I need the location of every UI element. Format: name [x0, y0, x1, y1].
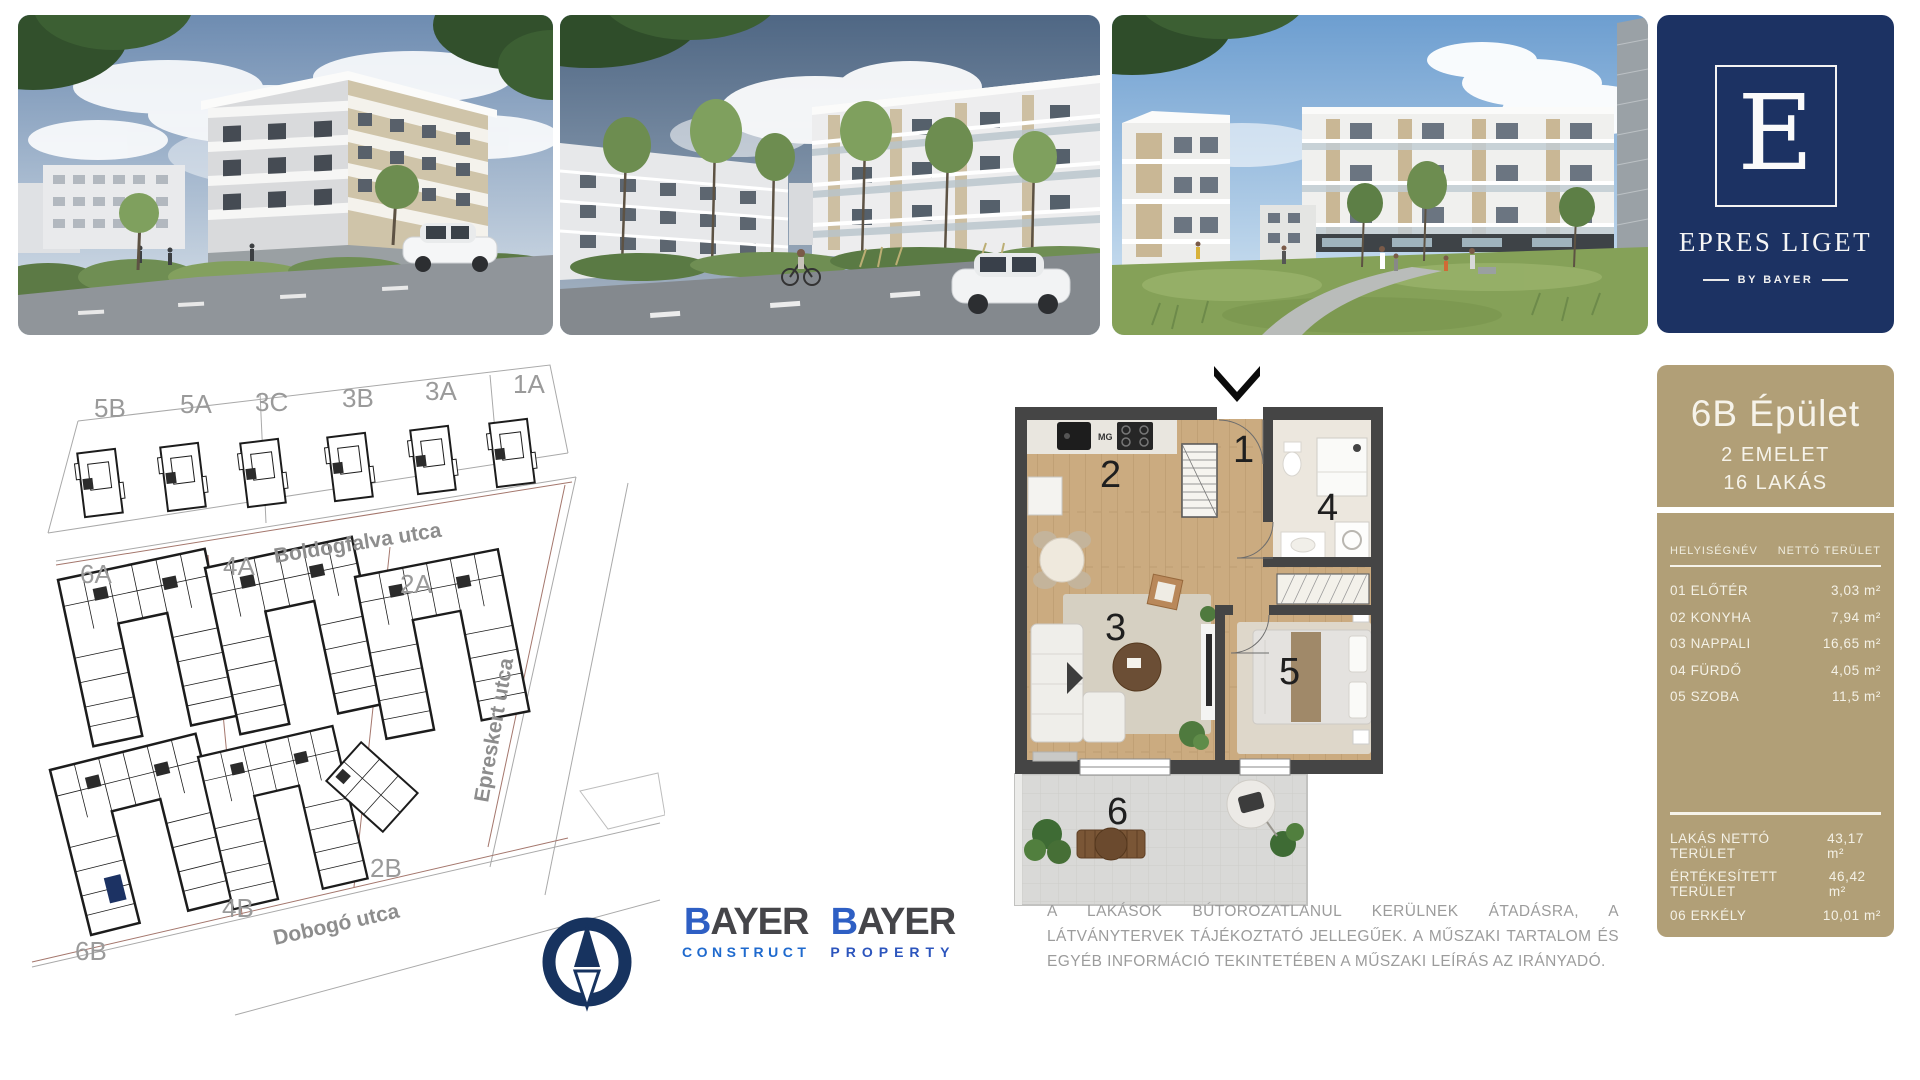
entrance-arrow-icon [1214, 366, 1260, 402]
label-4b: 4B [222, 893, 254, 923]
nightstand [1353, 730, 1369, 744]
table-divider [1670, 565, 1881, 567]
flat-datasheet-page: E EPRES LIGET BY BAYER [0, 0, 1920, 1080]
fridge [1028, 477, 1062, 515]
logo-subtitle-construct: CONSTRUCT [682, 944, 810, 960]
building-flats: 16 LAKÁS [1657, 472, 1894, 495]
brand-byline: BY BAYER [1703, 274, 1849, 286]
room-area: 16,65 m² [1823, 636, 1881, 651]
right-foreground-building [1617, 17, 1648, 287]
toilet [1283, 442, 1301, 476]
developer-logos: BAYER CONSTRUCT BAYER PROPERTY [682, 903, 955, 960]
hall-closet [1182, 444, 1217, 517]
column-header-room: HELYISÉGNÉV [1670, 545, 1758, 557]
room-name: 03 NAPPALI [1670, 636, 1751, 651]
table-row: 02 KONYHA 7,94 m² [1670, 610, 1881, 625]
label-3c: 3C [255, 387, 288, 417]
unit-info-header: 6B Épület 2 EMELET 16 LAKÁS [1657, 365, 1894, 507]
site-plan-map: 5B 5A 3C 3B 3A 1A 6A 4A 2A 2B 4B 6B Bold… [20, 355, 665, 1030]
render-photo-corner-building [18, 15, 553, 335]
label-3a: 3A [425, 376, 457, 406]
table-row: 05 SZOBA 11,5 m² [1670, 689, 1881, 704]
byline-text: BY BAYER [1738, 274, 1814, 286]
room-table: HELYISÉGNÉV NETTÓ TERÜLET 01 ELŐTÉR 3,03… [1657, 513, 1894, 937]
room-3: 3 [1105, 607, 1126, 649]
label-1a: 1A [513, 369, 545, 399]
label-4a: 4A [223, 551, 255, 581]
bed [1253, 630, 1371, 724]
room-5: 5 [1279, 651, 1300, 693]
tv [1206, 634, 1212, 706]
render-photo-3-art [1112, 15, 1648, 335]
room-area: 3,03 m² [1831, 583, 1881, 598]
label-5b: 5B [94, 393, 126, 423]
label-6a: 6A [80, 559, 112, 589]
room-name: 05 SZOBA [1670, 689, 1739, 704]
room-6: 6 [1107, 791, 1128, 833]
wardrobe [1277, 574, 1369, 604]
room-area: 7,94 m² [1831, 610, 1881, 625]
render-photo-2-art [560, 15, 1100, 335]
logo-subtitle-property: PROPERTY [830, 944, 955, 960]
logo-letter-b: B [684, 901, 710, 943]
summary-name: 06 ERKÉLY [1670, 908, 1746, 923]
bayer-construct-logo: BAYER CONSTRUCT [682, 903, 810, 960]
summary-row: ÉRTÉKESÍTETT TERÜLET 46,42 m² [1670, 869, 1881, 899]
distant-buildings [18, 165, 185, 253]
room-name: 02 KONYHA [1670, 610, 1751, 625]
left-building [1122, 111, 1230, 269]
unit-info-panel: 6B Épület 2 EMELET 16 LAKÁS HELYISÉGNÉV … [1657, 365, 1894, 937]
label-5a: 5A [180, 389, 212, 419]
byline-dash-left [1703, 279, 1729, 281]
logo-letters-ayer: AYER [857, 901, 955, 943]
label-6b: 6B [75, 936, 107, 966]
logo-letter-b: B [831, 901, 857, 943]
summary-divider [1670, 812, 1881, 815]
summary-area: 43,17 m² [1827, 831, 1881, 861]
room-2: 2 [1100, 454, 1121, 496]
label-2b: 2B [370, 853, 402, 883]
room-area: 11,5 m² [1832, 689, 1881, 704]
appliance-label: MG [1098, 432, 1113, 442]
column-header-area: NETTÓ TERÜLET [1778, 545, 1881, 557]
brand-name: EPRES LIGET [1679, 227, 1872, 258]
room-4: 4 [1317, 487, 1338, 529]
logo-letters-ayer: AYER [710, 901, 808, 943]
label-3b: 3B [342, 383, 374, 413]
washing-machine [1335, 522, 1369, 558]
bayer-property-logo: BAYER PROPERTY [830, 903, 955, 960]
render-photo-street-view [560, 15, 1100, 335]
brand-card: E EPRES LIGET BY BAYER [1657, 15, 1894, 333]
brand-monogram-frame: E [1715, 65, 1837, 207]
byline-dash-right [1822, 279, 1848, 281]
summary-area: 10,01 m² [1823, 908, 1881, 923]
render-photo-courtyard [1112, 15, 1648, 335]
street-dobogo: Dobogó utca [271, 900, 402, 950]
table-row: 01 ELŐTÉR 3,03 m² [1670, 583, 1881, 598]
summary-area: 46,42 m² [1829, 869, 1881, 899]
kitchen-sink [1057, 422, 1091, 450]
room-name: 04 FÜRDŐ [1670, 663, 1742, 678]
dining-set [1033, 531, 1091, 589]
radiator [1033, 752, 1077, 761]
main-building [1302, 107, 1614, 252]
building-title: 6B Épület [1657, 365, 1894, 435]
floor-plan: MG [1005, 362, 1390, 907]
disclaimer-text: A LAKÁSOK BÚTOROZATLANUL KERÜLNEK ÁTADÁS… [1047, 899, 1619, 974]
compass-north-icon [549, 923, 625, 1007]
room-area: 4,05 m² [1831, 663, 1881, 678]
room-1: 1 [1233, 429, 1254, 471]
label-2a: 2A [400, 569, 432, 599]
render-photo-1-art [18, 15, 553, 335]
summary-name: LAKÁS NETTÓ TERÜLET [1670, 831, 1827, 861]
balcony-side-wall [1015, 774, 1022, 905]
building-floors: 2 EMELET [1657, 444, 1894, 467]
table-row: 04 FÜRDŐ 4,05 m² [1670, 663, 1881, 678]
cooktop [1117, 422, 1153, 450]
table-row: 03 NAPPALI 16,65 m² [1670, 636, 1881, 651]
building-footprints-blocks[interactable] [50, 537, 529, 935]
summary-row: LAKÁS NETTÓ TERÜLET 43,17 m² [1670, 831, 1881, 861]
room-name: 01 ELŐTÉR [1670, 583, 1748, 598]
summary-name: ÉRTÉKESÍTETT TERÜLET [1670, 869, 1829, 899]
brand-monogram: E [1738, 81, 1814, 185]
summary-row: 06 ERKÉLY 10,01 m² [1670, 908, 1881, 923]
bathroom-sink [1281, 532, 1325, 558]
far-building [789, 183, 813, 245]
